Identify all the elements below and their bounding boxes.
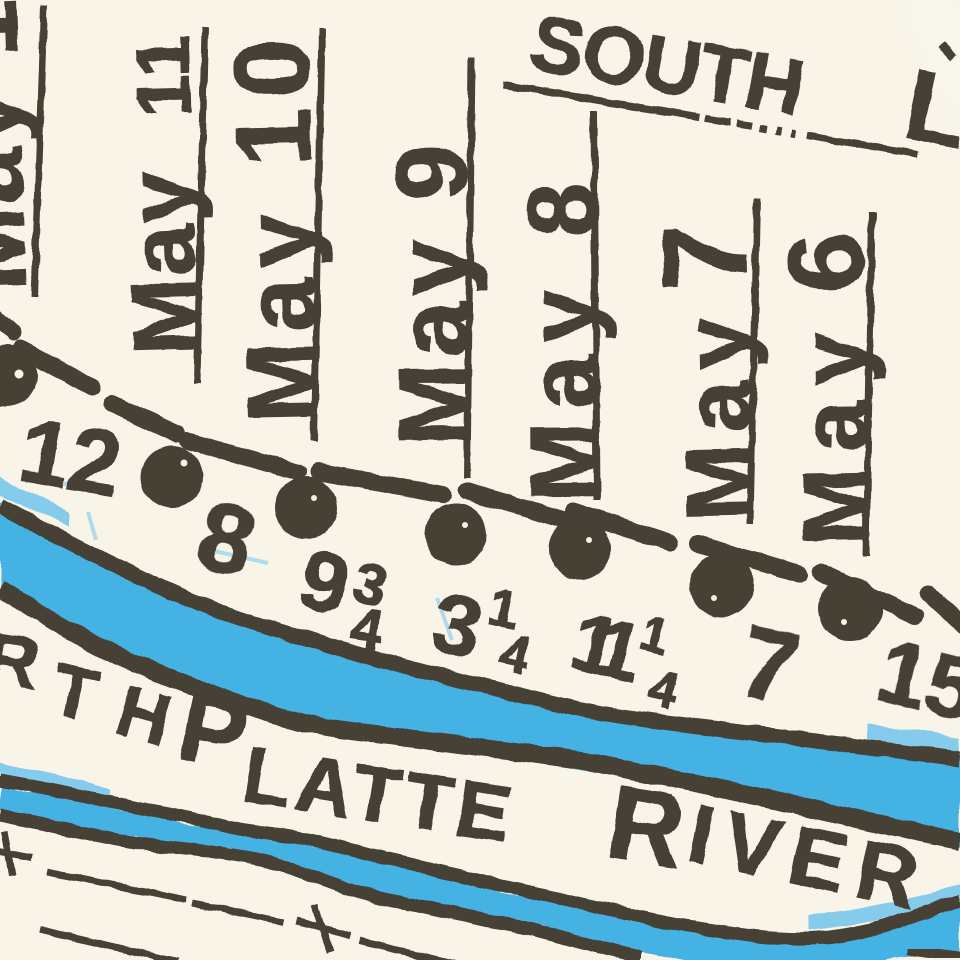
svg-text:May 10: May 10 — [213, 28, 339, 424]
svg-text:May 9: May 9 — [375, 138, 491, 447]
svg-text:12: 12 — [13, 400, 129, 516]
svg-text:May 8: May 8 — [509, 170, 618, 503]
svg-text:May 11: May 11 — [107, 32, 217, 356]
